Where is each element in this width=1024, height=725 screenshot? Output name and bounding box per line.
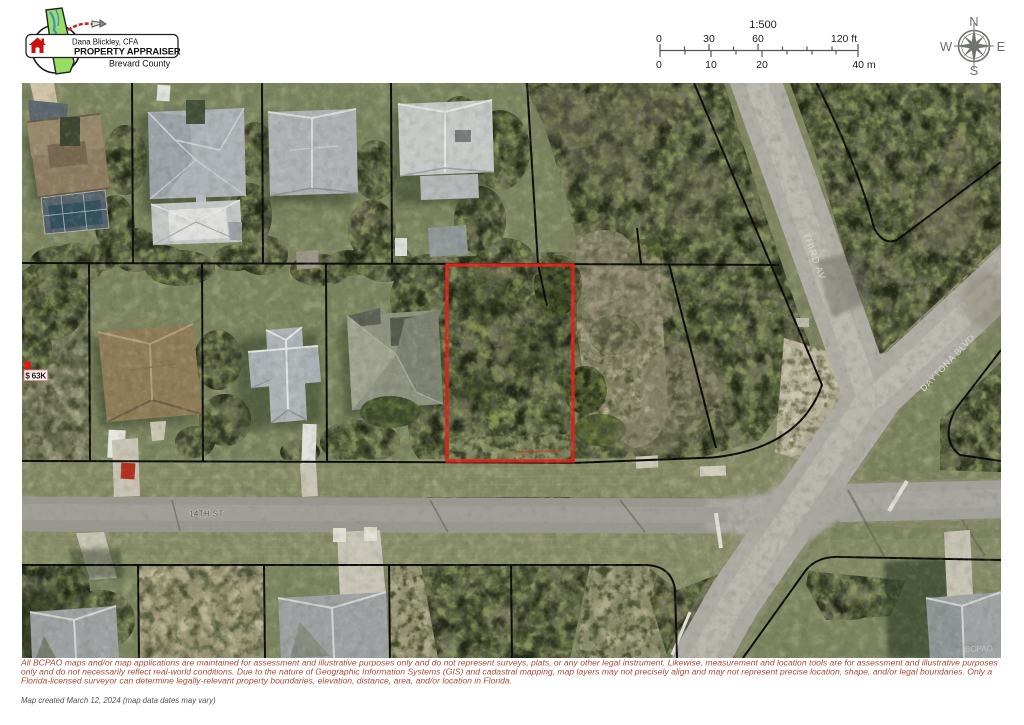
svg-text:Map created March 12, 2024 (ma: Map created March 12, 2024 (map data dat… — [21, 696, 216, 705]
svg-text:E: E — [997, 39, 1006, 54]
svg-text:N: N — [969, 14, 978, 29]
svg-text:BCPAO: BCPAO — [965, 644, 993, 654]
svg-text:120 ft: 120 ft — [831, 33, 857, 45]
svg-text:0: 0 — [656, 33, 662, 45]
svg-text:0: 0 — [656, 59, 662, 71]
svg-text:30: 30 — [703, 33, 715, 45]
svg-text:20: 20 — [756, 59, 768, 71]
svg-text:PROPERTY APPRAISER: PROPERTY APPRAISER — [74, 46, 181, 57]
svg-text:40 m: 40 m — [852, 59, 876, 71]
svg-text:1:500: 1:500 — [749, 19, 777, 31]
svg-text:S: S — [970, 63, 979, 78]
svg-text:Brevard County: Brevard County — [109, 59, 171, 69]
svg-text:Florida-licensed surveyor can: Florida-licensed surveyor can determine … — [21, 676, 512, 686]
svg-text:60: 60 — [752, 33, 764, 45]
svg-text:W: W — [940, 39, 953, 54]
svg-text:10: 10 — [705, 59, 717, 71]
